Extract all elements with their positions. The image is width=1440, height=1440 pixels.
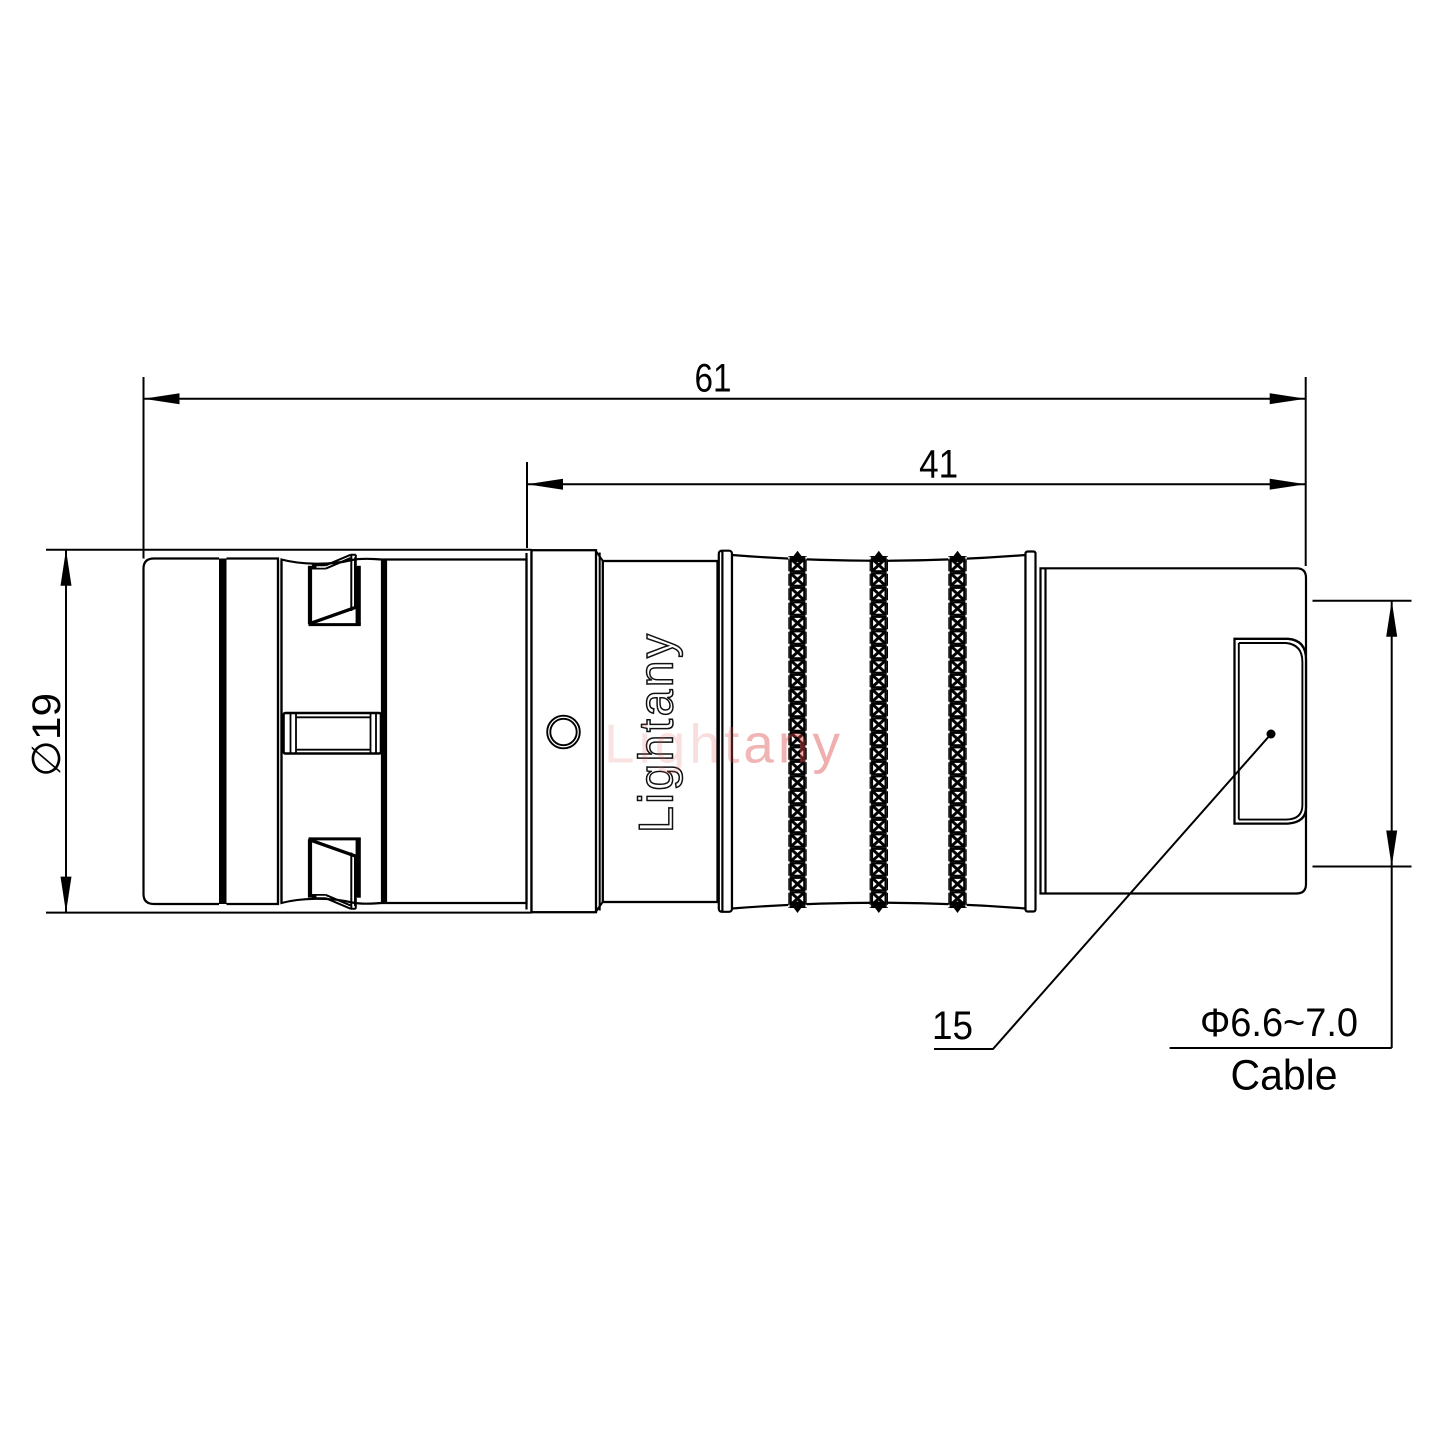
svg-text:61: 61: [695, 357, 732, 401]
svg-text:15: 15: [932, 1004, 973, 1048]
svg-text:Lightany: Lightany: [604, 713, 844, 775]
svg-text:41: 41: [919, 442, 958, 486]
svg-text:Φ6.6~7.0: Φ6.6~7.0: [1200, 1001, 1358, 1045]
svg-text:Cable: Cable: [1231, 1052, 1338, 1100]
svg-text:∅19: ∅19: [25, 693, 69, 777]
